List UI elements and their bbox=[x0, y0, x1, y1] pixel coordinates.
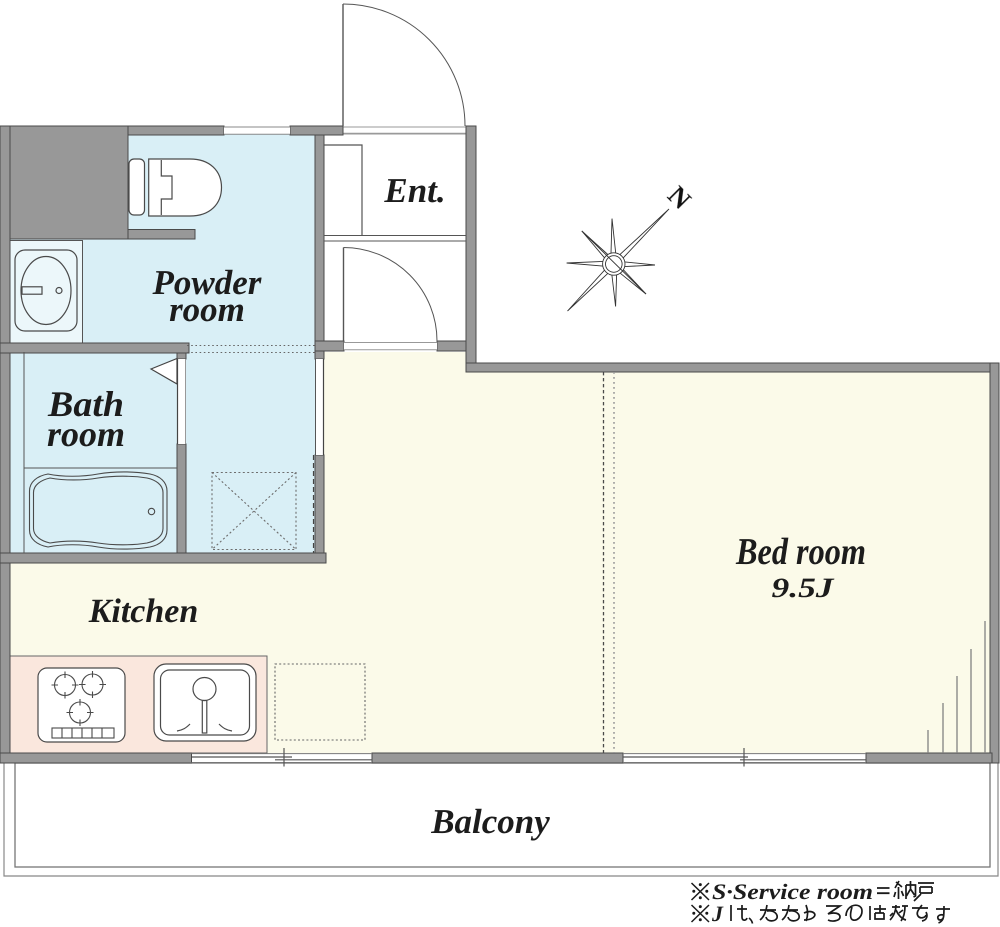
svg-text:S·Service room: S·Service room bbox=[712, 879, 873, 904]
svg-text:Ent.: Ent. bbox=[383, 171, 445, 210]
svg-text:Kitchen: Kitchen bbox=[88, 593, 199, 630]
svg-text:room: room bbox=[47, 414, 125, 454]
svg-text:Bed room: Bed room bbox=[735, 531, 866, 573]
svg-text:room: room bbox=[169, 290, 245, 329]
svg-text:9.5J: 9.5J bbox=[772, 573, 835, 604]
svg-text:J: J bbox=[711, 901, 724, 926]
svg-text:Balcony: Balcony bbox=[430, 802, 550, 841]
